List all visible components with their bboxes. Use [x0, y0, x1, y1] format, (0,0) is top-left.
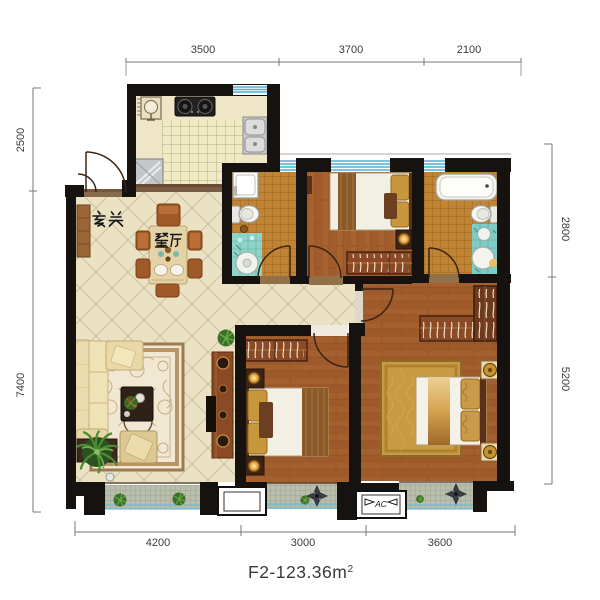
- svg-text:7400: 7400: [15, 373, 27, 397]
- svg-text:3500: 3500: [191, 44, 215, 56]
- svg-text:F2-123.36m2: F2-123.36m2: [248, 562, 354, 582]
- svg-text:3700: 3700: [339, 44, 363, 56]
- svg-text:3000: 3000: [291, 537, 315, 549]
- svg-text:2100: 2100: [457, 44, 481, 56]
- svg-text:3600: 3600: [428, 537, 452, 549]
- svg-text:4200: 4200: [146, 537, 170, 549]
- svg-text:2500: 2500: [15, 128, 27, 152]
- svg-text:2800: 2800: [559, 217, 571, 241]
- svg-text:5200: 5200: [559, 367, 571, 391]
- svg-text:AC: AC: [374, 499, 388, 509]
